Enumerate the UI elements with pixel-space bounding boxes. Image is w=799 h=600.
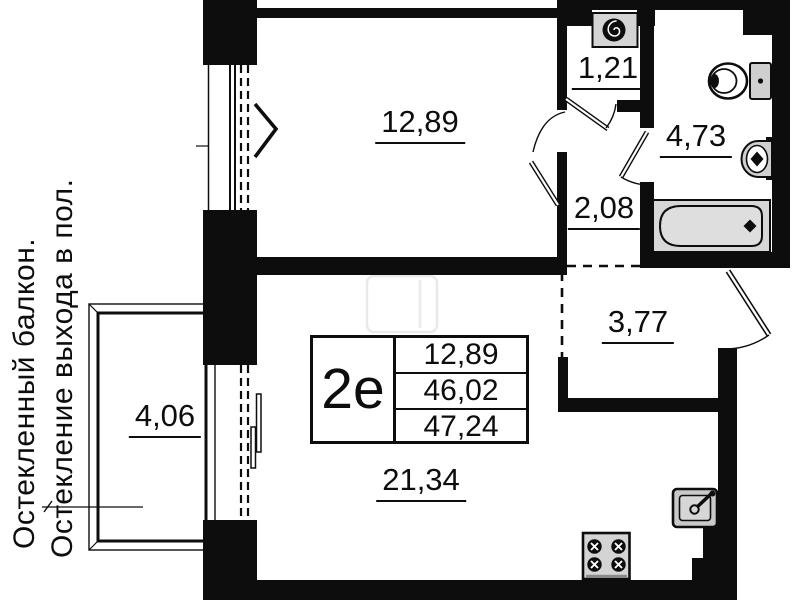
bathtub-icon (653, 200, 770, 252)
door-storage (566, 99, 616, 129)
area-label-kitchen-living: 21,34 (376, 464, 466, 502)
area-label-hallway: 2,08 (568, 192, 640, 230)
toilet-icon (709, 63, 771, 99)
area-label-balcony: 4,06 (129, 400, 201, 438)
unit-living-area: 12,89 (396, 338, 526, 374)
window-opening-chevron-icon (255, 104, 276, 157)
note-glazed-balcony: Остекленный балкон. (8, 238, 42, 549)
watermark-shape (367, 276, 437, 332)
unit-area-value: 46,02 (396, 374, 526, 410)
wash-basin-icon (742, 137, 773, 180)
door-bathroom (621, 132, 649, 185)
area-label-entry-hall: 3,77 (602, 306, 674, 344)
area-label-storage: 1,21 (572, 52, 644, 90)
entrance-door (723, 271, 769, 349)
balcony-door (241, 365, 261, 520)
note-floor-glazing: Остекление выхода в пол. (46, 178, 80, 558)
bedroom-window (196, 65, 248, 210)
unit-total-area: 47,24 (396, 410, 526, 444)
floor-plan-drawing (0, 0, 799, 600)
area-label-bathroom: 4,73 (660, 120, 732, 158)
floor-plan: 12,89 1,21 4,73 2,08 3,77 4,06 21,34 2е … (0, 0, 799, 600)
stove-icon (583, 533, 630, 579)
kitchen-sink-icon (673, 489, 717, 527)
washing-machine-icon (593, 13, 638, 47)
unit-info-table: 2е 12,89 46,02 47,24 (310, 335, 529, 444)
area-label-bedroom: 12,89 (375, 106, 465, 144)
unit-areas: 12,89 46,02 47,24 (396, 338, 526, 441)
unit-type-label: 2е (313, 338, 396, 441)
